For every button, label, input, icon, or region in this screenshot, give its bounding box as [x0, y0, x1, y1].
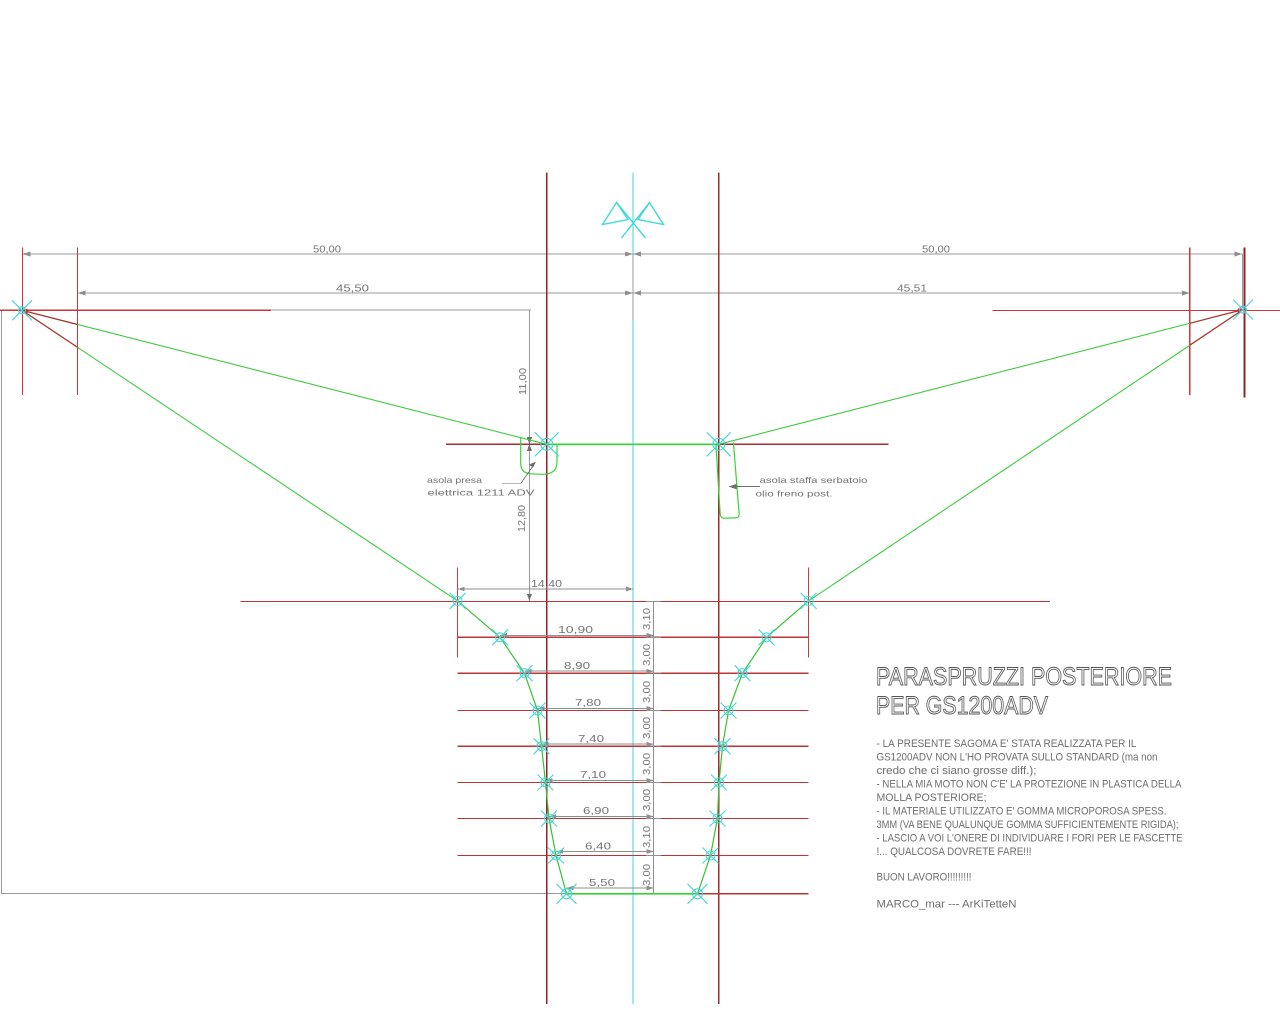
svg-text:asola presa: asola presa — [427, 475, 482, 485]
svg-text:7,80: 7,80 — [575, 697, 601, 709]
svg-text:50,00: 50,00 — [922, 244, 950, 256]
svg-text:7,40: 7,40 — [578, 733, 604, 745]
svg-text:3,00: 3,00 — [641, 753, 653, 775]
svg-text:6,40: 6,40 — [585, 841, 611, 853]
svg-text:!... QUALCOSA DOVRETE FARE!!!: !... QUALCOSA DOVRETE FARE!!! — [877, 846, 1032, 858]
svg-text:12,80: 12,80 — [516, 505, 528, 532]
svg-text:- NELLA MIA MOTO NON C'E' LA P: - NELLA MIA MOTO NON C'E' LA PROTEZIONE … — [877, 779, 1183, 791]
svg-text:6,90: 6,90 — [583, 805, 609, 817]
svg-text:3,00: 3,00 — [641, 681, 653, 703]
svg-text:BUON LAVORO!!!!!!!!!: BUON LAVORO!!!!!!!!! — [877, 872, 972, 884]
svg-text:3MM (VA BENE QUALUNQUE GOMMA S: 3MM (VA BENE QUALUNQUE GOMMA SUFFICIENTE… — [877, 819, 1179, 831]
svg-text:PARASPRUZZI POSTERIORE: PARASPRUZZI POSTERIORE — [876, 663, 1172, 691]
svg-text:10,90: 10,90 — [558, 624, 593, 636]
svg-text:45,50: 45,50 — [336, 283, 369, 295]
svg-text:- LASCIO A VOI L'ONERE DI INDI: - LASCIO A VOI L'ONERE DI INDIVIDUARE I … — [877, 833, 1183, 845]
svg-text:14,40: 14,40 — [531, 578, 562, 590]
svg-text:3,10: 3,10 — [641, 826, 653, 848]
svg-text:olio freno post.: olio freno post. — [756, 489, 833, 499]
svg-text:7,10: 7,10 — [580, 769, 606, 781]
svg-text:50,00: 50,00 — [313, 244, 341, 256]
svg-text:5,50: 5,50 — [589, 877, 615, 889]
svg-text:elettrica 1211 ADV: elettrica 1211 ADV — [428, 488, 535, 498]
svg-text:3,00: 3,00 — [641, 644, 653, 666]
svg-text:3,00: 3,00 — [641, 864, 653, 886]
svg-text:8,90: 8,90 — [564, 660, 590, 672]
svg-text:MARCO_mar --- ArKiTetteN: MARCO_mar --- ArKiTetteN — [877, 899, 1017, 911]
svg-text:credo che ci siano grosse diff: credo che ci siano grosse diff.); — [877, 765, 1037, 777]
svg-text:3,10: 3,10 — [641, 608, 653, 630]
svg-text:- LA PRESENTE SAGOMA E' STATA: - LA PRESENTE SAGOMA E' STATA REALIZZATA… — [877, 738, 1137, 750]
svg-text:45,51: 45,51 — [897, 283, 927, 295]
svg-text:PER GS1200ADV: PER GS1200ADV — [876, 692, 1048, 720]
svg-text:GS1200ADV NON L'HO PROVATA SUL: GS1200ADV NON L'HO PROVATA SULLO STANDAR… — [877, 752, 1158, 764]
svg-text:3,00: 3,00 — [641, 789, 653, 811]
svg-text:3,00: 3,00 — [641, 717, 653, 739]
svg-text:asola staffa serbatoio: asola staffa serbatoio — [760, 475, 868, 485]
svg-text:11,00: 11,00 — [517, 368, 529, 395]
svg-text:MOLLA POSTERIORE;: MOLLA POSTERIORE; — [877, 792, 987, 804]
svg-text:- IL MATERIALE UTILIZZATO E' G: - IL MATERIALE UTILIZZATO E' GOMMA MICRO… — [877, 806, 1167, 818]
